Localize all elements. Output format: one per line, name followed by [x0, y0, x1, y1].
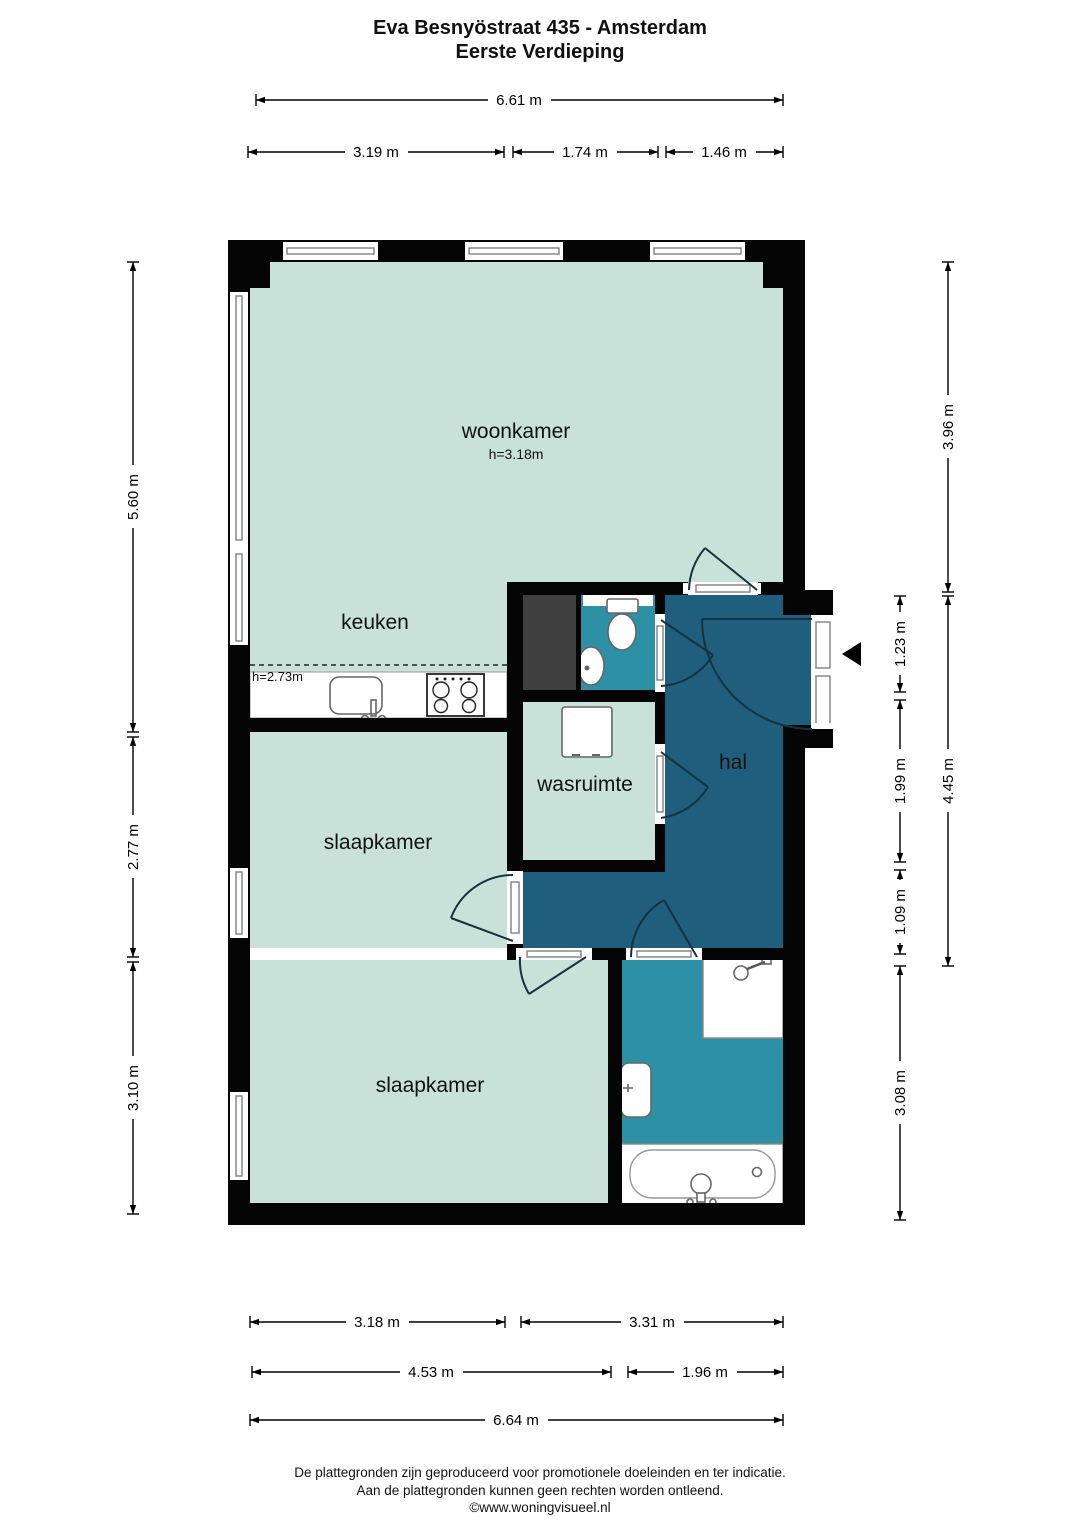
floorplan-page: Eva Besnyöstraat 435 - Amsterdam Eerste … — [0, 0, 1080, 1528]
svg-text:6.64 m: 6.64 m — [493, 1412, 539, 1429]
dim-right-inner-3: 1.09 m — [891, 870, 909, 954]
label-slaapkamer1: slaapkamer — [324, 831, 433, 854]
dim-bottom-1a: 3.18 m — [250, 1313, 505, 1331]
window — [283, 242, 378, 260]
dim-bottom-1b: 3.31 m — [521, 1313, 783, 1331]
label-keuken-height: h=2.73m — [252, 669, 303, 684]
label-hal: hal — [719, 751, 747, 774]
svg-text:2.77 m: 2.77 m — [125, 824, 142, 870]
bathtub — [621, 1144, 783, 1205]
dim-right-inner-4: 3.08 m — [891, 966, 909, 1220]
window — [650, 242, 745, 260]
dim-bottom-2b: 1.96 m — [628, 1363, 783, 1381]
label-woonkamer-height: h=3.18m — [489, 446, 544, 462]
dim-bottom-total: 6.64 m — [250, 1411, 783, 1429]
dim-left-1: 5.60 m — [124, 262, 142, 732]
dim-top-1: 3.19 m — [248, 143, 504, 161]
svg-text:3.18 m: 3.18 m — [354, 1314, 400, 1331]
dim-right-outer-1: 3.96 m — [939, 262, 957, 592]
dim-top-total: 6.61 m — [256, 91, 783, 109]
washing-machine — [562, 707, 612, 757]
svg-text:1.09 m: 1.09 m — [892, 889, 909, 935]
svg-text:3.31 m: 3.31 m — [629, 1314, 675, 1331]
svg-text:1.46 m: 1.46 m — [701, 144, 747, 161]
dim-right-outer-2: 4.45 m — [939, 596, 957, 966]
svg-text:3.10 m: 3.10 m — [125, 1065, 142, 1111]
dim-left-2: 2.77 m — [124, 737, 142, 957]
stove — [427, 674, 484, 716]
footer-line1: De plattegronden zijn geproduceerd voor … — [294, 1465, 786, 1480]
label-slaapkamer2: slaapkamer — [376, 1074, 485, 1097]
shower — [703, 957, 783, 1038]
toilet-basin — [578, 647, 604, 685]
window — [230, 868, 248, 938]
footer-line3: ©www.woningvisueel.nl — [469, 1500, 610, 1515]
dim-top-3: 1.46 m — [666, 143, 783, 161]
dim-right-inner-2: 1.99 m — [891, 700, 909, 862]
svg-text:3.08 m: 3.08 m — [892, 1070, 909, 1116]
window — [230, 1092, 248, 1180]
footer: De plattegronden zijn geproduceerd voor … — [294, 1465, 786, 1515]
washbasin — [621, 1063, 651, 1117]
footer-line2: Aan de plattegronden kunnen geen rechten… — [356, 1483, 723, 1498]
room-floors — [250, 262, 813, 1203]
page-subtitle: Eerste Verdieping — [456, 41, 625, 63]
svg-text:3.96 m: 3.96 m — [940, 404, 957, 450]
hal-entry-floor — [783, 612, 813, 728]
label-keuken: keuken — [341, 611, 409, 634]
svg-text:3.19 m: 3.19 m — [353, 144, 399, 161]
dim-bottom-2a: 4.53 m — [252, 1363, 611, 1381]
window — [465, 242, 563, 260]
label-woonkamer: woonkamer — [461, 420, 571, 443]
floorplan-canvas: Eva Besnyöstraat 435 - Amsterdam Eerste … — [0, 0, 1080, 1528]
label-wasruimte: wasruimte — [536, 773, 633, 796]
svg-text:1.96 m: 1.96 m — [682, 1364, 728, 1381]
page-title: Eva Besnyöstraat 435 - Amsterdam — [373, 17, 707, 39]
svg-text:4.45 m: 4.45 m — [940, 758, 957, 804]
closet — [519, 595, 578, 690]
svg-text:1.74 m: 1.74 m — [562, 144, 608, 161]
svg-text:5.60 m: 5.60 m — [125, 474, 142, 520]
window — [230, 292, 248, 645]
svg-text:6.61 m: 6.61 m — [496, 92, 542, 109]
dim-top-2: 1.74 m — [513, 143, 658, 161]
dim-right-inner-1: 1.23 m — [891, 596, 909, 692]
entrance-arrow-icon — [842, 642, 861, 666]
toilet — [607, 599, 638, 650]
dim-left-3: 3.10 m — [124, 962, 142, 1214]
svg-text:1.99 m: 1.99 m — [892, 758, 909, 804]
svg-text:1.23 m: 1.23 m — [892, 621, 909, 667]
svg-text:4.53 m: 4.53 m — [408, 1364, 454, 1381]
